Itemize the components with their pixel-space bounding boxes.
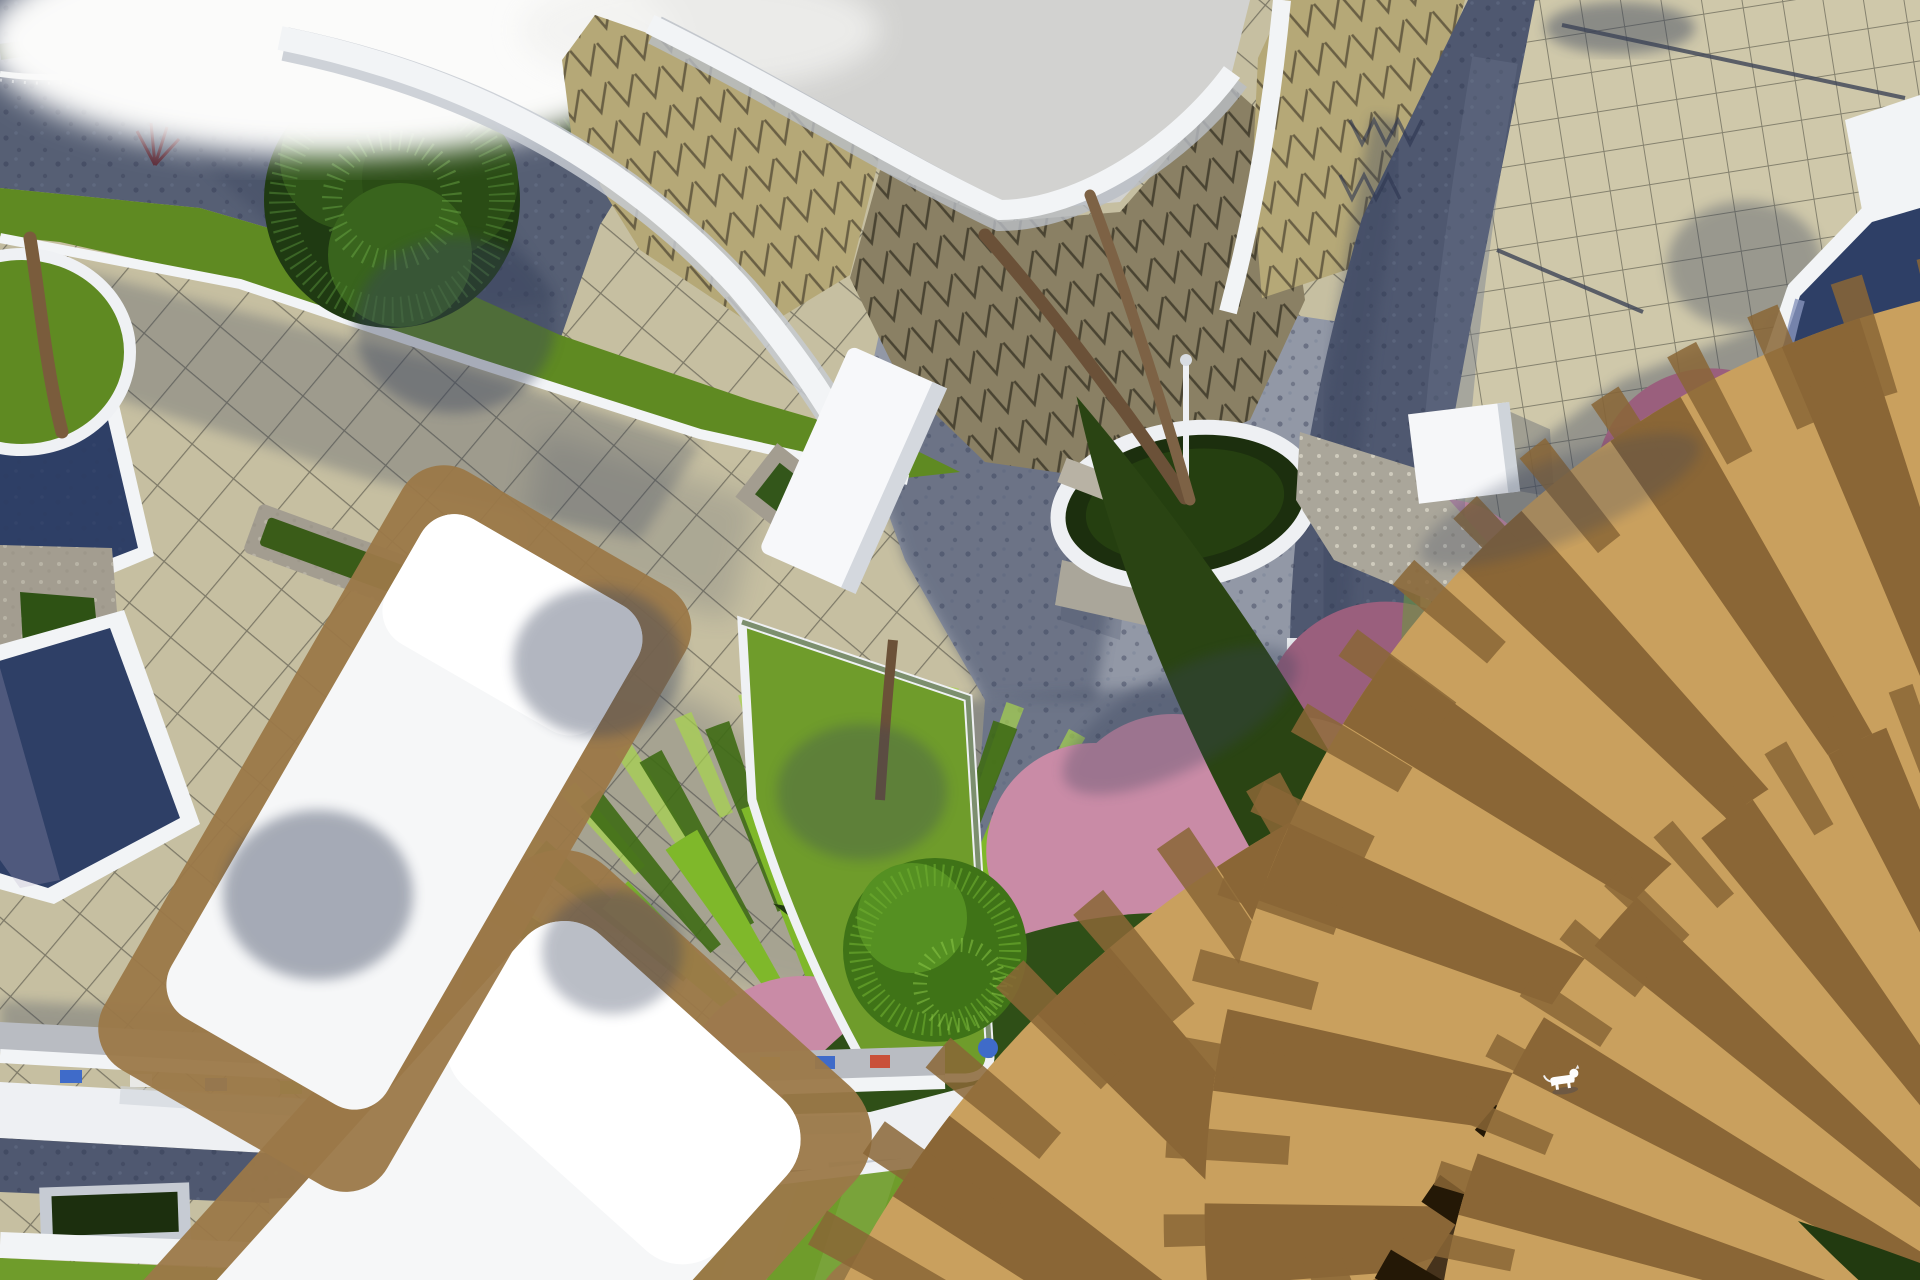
scene-canvas: Aerial 3D rendering of a resort courtyar… [0, 0, 1920, 1280]
blue-pot [978, 1038, 998, 1058]
aerial-render: Aerial 3D rendering of a resort courtyar… [0, 0, 1920, 1280]
lamp-head [1180, 354, 1192, 366]
